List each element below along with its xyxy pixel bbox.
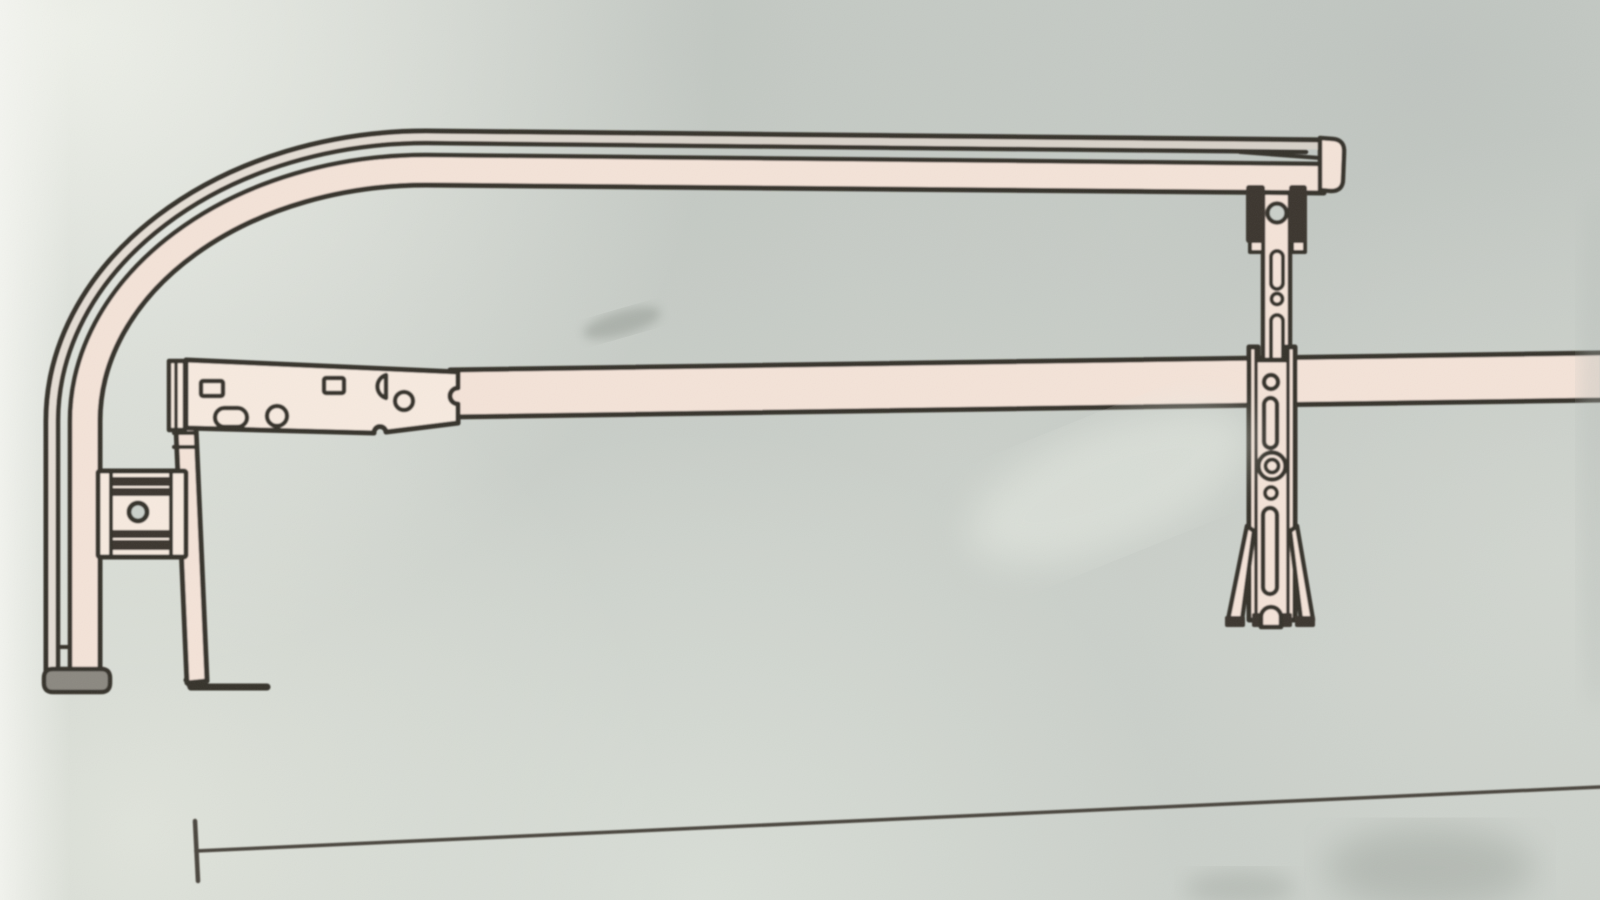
paper-grain [0, 0, 1600, 900]
photo-of-installation-diagram [0, 0, 1600, 900]
diagram-canvas [0, 0, 1600, 900]
